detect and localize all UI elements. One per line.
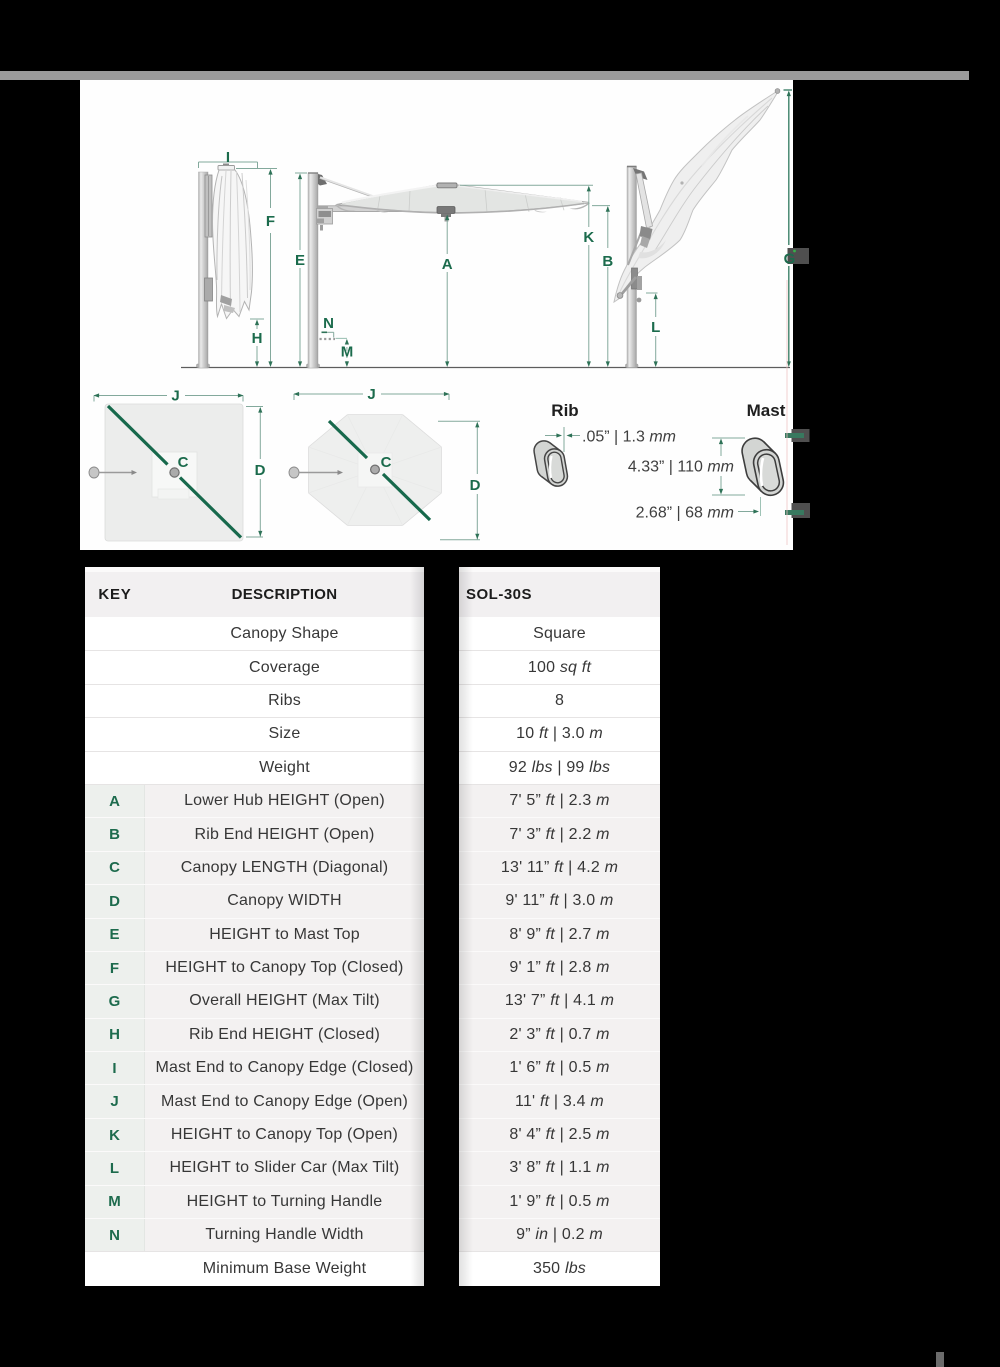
svg-text:G: G <box>784 251 796 268</box>
svg-text:H: H <box>252 330 263 347</box>
svg-text:J: J <box>171 388 179 405</box>
svg-text:Mast: Mast <box>747 401 786 420</box>
svg-text:4.33” | 110 mm: 4.33” | 110 mm <box>628 459 734 476</box>
svg-text:C: C <box>381 454 392 471</box>
svg-text:.05” | 1.3 mm: .05” | 1.3 mm <box>582 429 676 446</box>
svg-text:Rib: Rib <box>551 401 578 420</box>
svg-text:I: I <box>226 149 230 166</box>
svg-text:C: C <box>178 454 189 471</box>
svg-text:E: E <box>295 252 305 269</box>
svg-text:J: J <box>367 386 375 403</box>
svg-text:M: M <box>341 344 354 361</box>
svg-text:A: A <box>442 256 453 273</box>
svg-text:D: D <box>255 462 266 479</box>
svg-text:D: D <box>470 477 481 494</box>
svg-text:B: B <box>602 253 613 270</box>
svg-text:2.68” | 68 mm: 2.68” | 68 mm <box>636 505 734 522</box>
svg-text:L: L <box>651 319 660 336</box>
svg-text:F: F <box>266 213 275 230</box>
svg-text:K: K <box>583 229 594 246</box>
svg-text:N: N <box>323 315 334 332</box>
